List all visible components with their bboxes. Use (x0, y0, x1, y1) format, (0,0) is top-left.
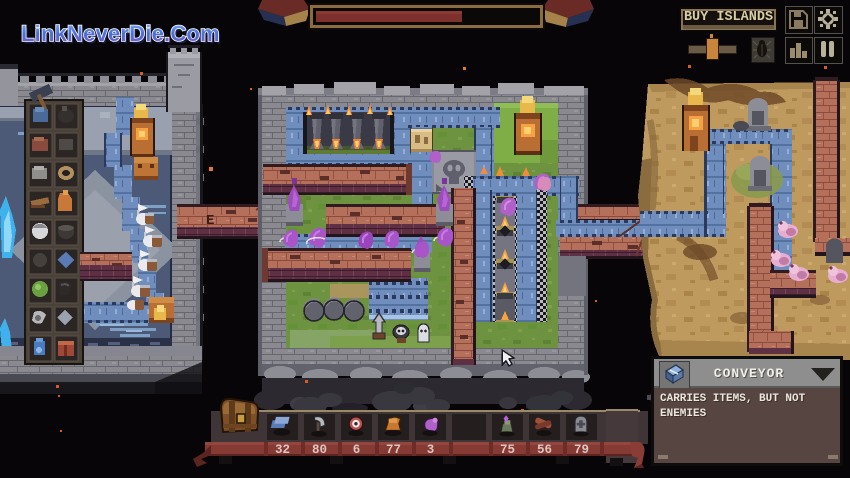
svg-text:LinkNeverDie.Com: LinkNeverDie.Com (21, 21, 220, 46)
svg-text:E: E (206, 213, 214, 229)
